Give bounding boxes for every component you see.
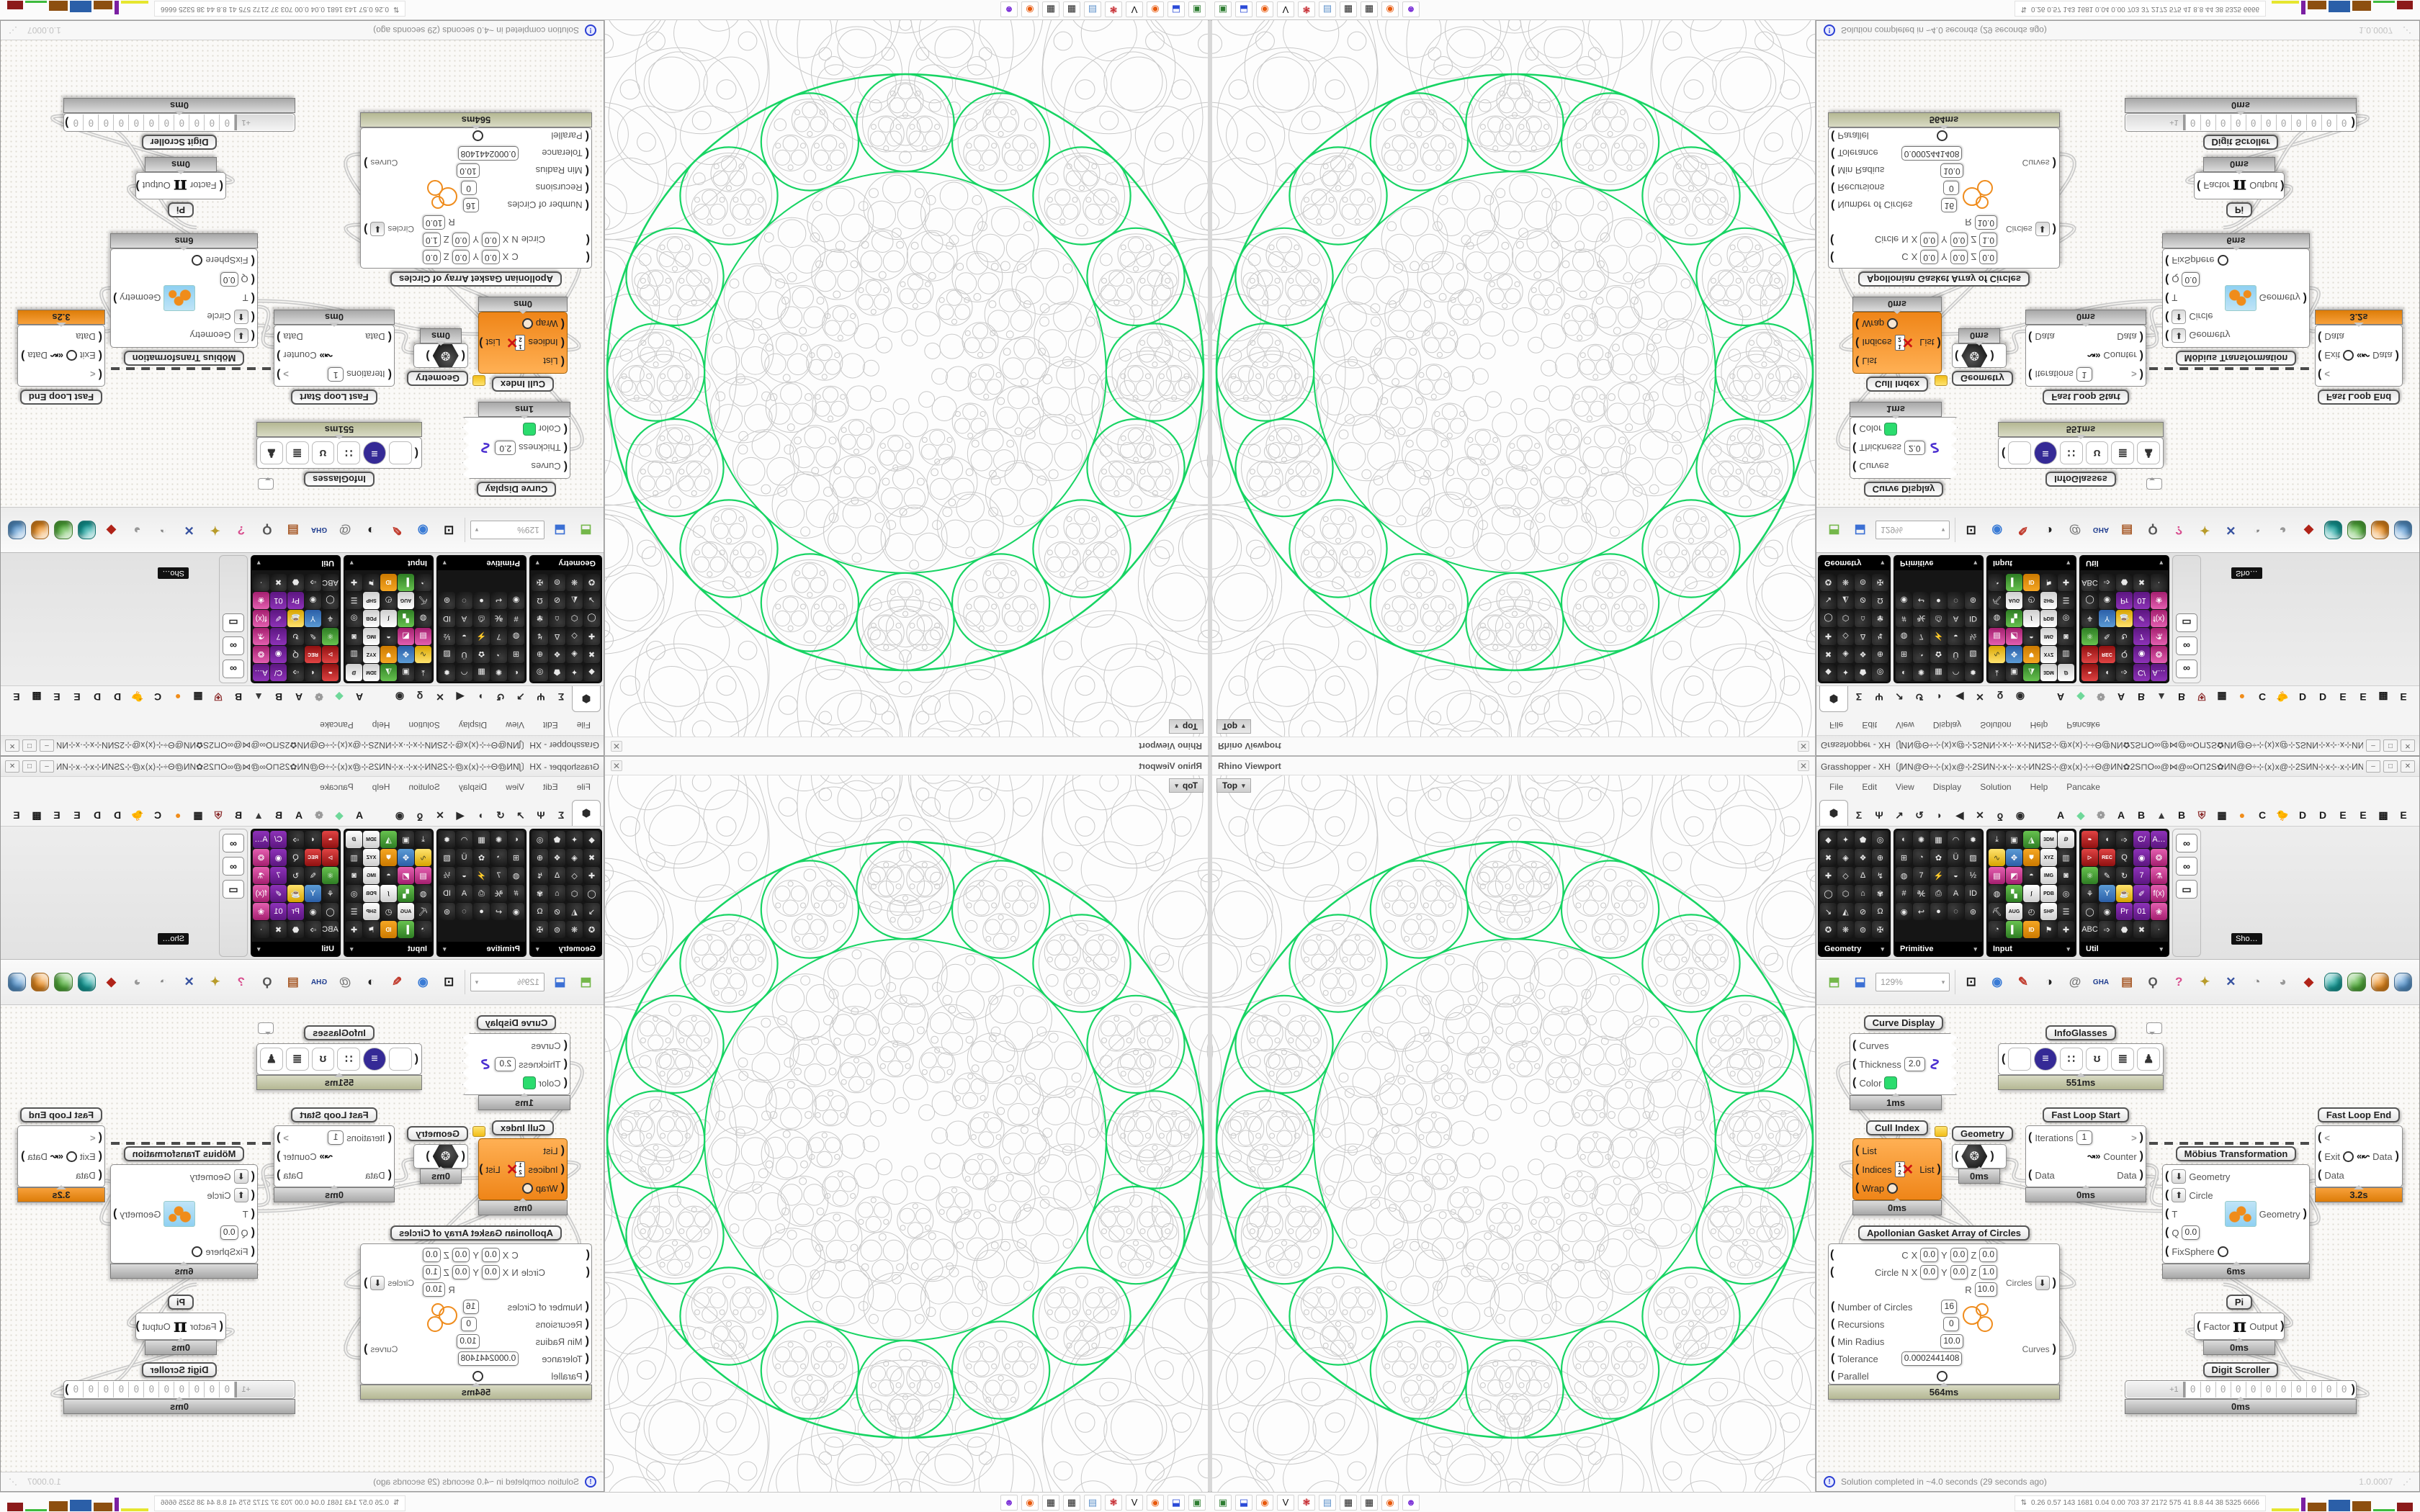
palette-icon[interactable]: Q (2116, 646, 2133, 663)
palette-icon[interactable]: ⊕ (1872, 849, 1888, 866)
palette-icon[interactable]: ∿ (1989, 646, 2005, 663)
chevron-down-icon[interactable]: ▾ (1973, 945, 1977, 953)
plugin-tab-2[interactable]: ❁ (310, 804, 328, 826)
input-grip[interactable]: ( (388, 369, 392, 380)
cx-value[interactable]: 0.0 (482, 250, 500, 264)
palette-icon[interactable]: ◎ (1872, 831, 1888, 848)
palette-icon[interactable]: IMG (363, 867, 380, 884)
view-tab-top[interactable]: Top ▾ (1216, 719, 1251, 734)
finder-button[interactable]: Ϙ (2143, 971, 2164, 993)
category-tab-2[interactable]: Ψ (532, 804, 550, 826)
palette-icon[interactable]: ✹ (439, 664, 455, 681)
palette-icon[interactable]: ◉ (305, 903, 321, 920)
palette-icon[interactable]: ⚘ (2081, 610, 2098, 627)
mobius-transformation-component[interactable]: Möbius Transformation (⬇Geometry (⬆Circl… (110, 233, 258, 366)
profiler-icon[interactable]: ≡ (2034, 1048, 2057, 1071)
palette-icon[interactable]: ❀ (2151, 903, 2167, 920)
comment-bubble-icon[interactable] (2146, 478, 2162, 490)
palette-icon[interactable]: ✥ (398, 849, 414, 866)
input-grip[interactable]: ( (1855, 337, 1859, 348)
category-tab-3[interactable]: ↗ (1890, 686, 1909, 708)
category-tab-6[interactable]: ◀ (451, 686, 470, 708)
app-dark-v[interactable]: V (1126, 2, 1143, 18)
palette-icon[interactable]: ✎ (305, 867, 321, 884)
zoom-extents-button[interactable]: ⊡ (1960, 519, 1981, 541)
output-grip[interactable]: ) (479, 337, 483, 348)
open-file-button[interactable]: ⬒ (1824, 519, 1845, 541)
archive-icon[interactable]: ≣ (286, 1048, 309, 1071)
palette-icon[interactable]: ↻ (2116, 867, 2133, 884)
palette-icon[interactable]: ⊜ (549, 574, 565, 591)
infoglasses-palette-icon-0[interactable]: ∞ (223, 660, 244, 678)
palette-icon[interactable]: ◉ (1896, 903, 1912, 920)
palette-icon[interactable]: ◉ (270, 646, 287, 663)
group-orange-button[interactable] (31, 521, 49, 539)
plugin-tab-17[interactable]: E (7, 686, 26, 708)
app-firefox-2[interactable]: ◉ (1381, 1495, 1399, 1511)
palette-icon[interactable]: ⬟ (549, 664, 565, 681)
digit-cell[interactable]: 0 (144, 1382, 159, 1398)
group-orange-button[interactable] (31, 973, 49, 991)
hints-button[interactable]: ✦ (205, 519, 225, 541)
palette-icon[interactable]: ✺ (490, 664, 507, 681)
palette-icon[interactable]: ⬡ (1837, 885, 1854, 902)
input-grip[interactable]: ( (415, 447, 418, 459)
menu-view[interactable]: View (1896, 782, 1914, 792)
category-tab-1[interactable]: Σ (552, 804, 570, 826)
palette-icon[interactable]: Ü (1948, 849, 1964, 866)
plugin-tab-9[interactable]: ● (169, 686, 187, 708)
palette-icon[interactable]: ↘ (583, 592, 600, 609)
geometry-param-component[interactable]: Geometry (❂) 0ms (413, 1126, 468, 1184)
palette-icon[interactable]: ⬟ (1855, 664, 1871, 681)
palette-icon[interactable]: ⚡ (1930, 867, 1947, 884)
resize-grip[interactable]: ⋰ (2403, 25, 2412, 35)
component-label[interactable]: Fast Loop End (20, 390, 102, 405)
pi-component[interactable]: Pi (FactorπOutput) 0ms (2194, 1295, 2285, 1355)
palette-icon[interactable]: ⊞ (508, 646, 524, 663)
iterations-value[interactable]: 1 (2076, 1130, 2092, 1145)
notes-button[interactable]: ▤ (282, 519, 303, 541)
palette-icon[interactable]: REC (2099, 849, 2115, 866)
input-grip[interactable]: ( (1852, 1058, 1856, 1070)
sphere-button[interactable] (8, 521, 26, 539)
palette-icon[interactable]: PDB (363, 885, 380, 902)
app-red-badge[interactable]: ❃ (1105, 2, 1122, 18)
component-label[interactable]: Geometry (1952, 1126, 2013, 1141)
menu-edit[interactable]: Edit (543, 720, 558, 730)
output-grip[interactable]: ) (2352, 1384, 2355, 1395)
palette-icon[interactable]: ⚗ (253, 628, 269, 645)
zoom-select[interactable]: 129%▾ (470, 973, 544, 991)
input-grip[interactable]: ( (251, 274, 255, 285)
input-grip[interactable]: ( (2028, 1132, 2032, 1143)
group-green-button[interactable] (54, 521, 72, 539)
category-tab-7[interactable]: ✕ (431, 804, 449, 826)
palette-icon[interactable]: ◴ (380, 592, 397, 609)
palette-icon[interactable]: ❀ (253, 903, 269, 920)
infoglasses-palette-icon-0[interactable]: ∞ (2176, 834, 2197, 852)
menu-view[interactable]: View (506, 720, 524, 730)
digit-cell[interactable]: 0 (2336, 1382, 2352, 1398)
input-grip[interactable]: ( (1855, 1164, 1859, 1175)
palette-icon[interactable]: ❂ (253, 849, 269, 866)
category-tab-3[interactable]: ↗ (1890, 804, 1909, 826)
palette-icon[interactable]: Pr (287, 903, 304, 920)
plugin-tab-15[interactable]: E (2354, 686, 2372, 708)
palette-icon[interactable]: ✾ (1872, 610, 1888, 627)
palette-icon[interactable]: Ω (532, 903, 548, 920)
group-teal-button[interactable] (78, 521, 96, 539)
plugin-tab-7[interactable]: ⛨ (2192, 686, 2211, 708)
fast-loop-start-component[interactable]: Fast Loop Start (Iterations1>) ↝»Counter… (2025, 1107, 2146, 1202)
plugin-tab-8[interactable]: ▦ (2213, 686, 2231, 708)
input-grip[interactable]: ( (251, 292, 255, 304)
viewport-canvas[interactable]: Top ▾ (1212, 19, 1815, 737)
palette-icon[interactable]: ✠ (532, 921, 548, 938)
palette-icon[interactable]: ◖ (2099, 664, 2115, 681)
digit-cell[interactable]: 0 (2215, 114, 2231, 130)
comment-bubble-icon[interactable] (258, 478, 274, 490)
output-grip[interactable]: ) (479, 1164, 483, 1175)
palette-icon[interactable]: Q (287, 646, 304, 663)
palette-icon[interactable]: IMG (2040, 867, 2057, 884)
palette-icon[interactable]: ID (380, 574, 397, 591)
mobius-transformation-component[interactable]: Möbius Transformation (⬇Geometry (⬆Circl… (2162, 1146, 2310, 1279)
palette-icon[interactable]: XYZ (363, 849, 380, 866)
chevron-down-icon[interactable]: ▾ (257, 559, 261, 567)
chevron-down-icon[interactable]: ▾ (350, 559, 354, 567)
remote-button[interactable]: @ (2064, 971, 2085, 993)
palette-icon[interactable]: ◓ (380, 628, 397, 645)
menu-view[interactable]: View (506, 782, 524, 792)
palette-icon[interactable]: ✎ (305, 628, 321, 645)
palette-icon[interactable]: ◠ (456, 664, 472, 681)
digit-cell[interactable]: 0 (159, 1382, 174, 1398)
preview-button[interactable]: ◉ (1986, 971, 2007, 993)
app-maze-2[interactable]: ▦ (1361, 1495, 1378, 1511)
palette-icon[interactable]: ▥ (346, 849, 362, 866)
palette-icon[interactable]: ⬟ (549, 831, 565, 848)
thickness-value[interactable]: 2.0 (495, 441, 516, 455)
input-grip[interactable]: ( (561, 1164, 565, 1175)
camera2-button[interactable]: ◕ (2272, 519, 2293, 541)
profiler-icon[interactable]: ≡ (363, 441, 386, 464)
output-grip[interactable]: ) (2396, 1151, 2399, 1162)
input-grip[interactable]: ( (1831, 1336, 1834, 1347)
palette-icon[interactable]: 01 (270, 903, 287, 920)
palette-icon[interactable]: ⚡ (473, 628, 490, 645)
palette-icon[interactable]: ☕ (287, 610, 304, 627)
digit-cell[interactable]: 0 (2185, 114, 2200, 130)
palette-icon[interactable]: 3DM (363, 664, 380, 681)
palette-icon[interactable]: ◈ (566, 646, 583, 663)
input-grip[interactable]: ( (561, 356, 565, 367)
input-grip[interactable]: ( (99, 331, 102, 343)
palette-icon[interactable]: ID (439, 610, 455, 627)
palette-icon[interactable]: ℀ (1913, 610, 1930, 627)
plugin-tab-3[interactable]: A (2112, 686, 2130, 708)
input-grip[interactable]: ( (99, 350, 102, 361)
palette-icon[interactable]: ❂ (2151, 646, 2167, 663)
palette-icon[interactable]: Y (2099, 610, 2115, 627)
digit-cell[interactable]: 0 (2200, 1382, 2215, 1398)
palette-icon[interactable]: ▨ (1965, 849, 1981, 866)
app-firefox-1[interactable]: ◉ (1147, 2, 1164, 18)
plugin-tab-17[interactable]: E (7, 804, 26, 826)
palette-icon[interactable]: ▤ (1989, 867, 2005, 884)
palette-icon[interactable]: ◌ (1948, 903, 1964, 920)
component-label[interactable]: Digit Scroller (142, 1362, 218, 1377)
input-grip[interactable]: ( (2318, 369, 2321, 380)
palette-icon[interactable]: C/ (2133, 831, 2150, 848)
plugin-tab-17[interactable]: E (2394, 804, 2413, 826)
palette-icon[interactable]: ✖ (583, 646, 600, 663)
category-tab-7[interactable]: ✕ (431, 686, 449, 708)
input-grip[interactable]: ( (251, 1171, 255, 1182)
comment-bubble-icon[interactable] (2146, 1022, 2162, 1034)
palette-icon[interactable]: ◔ (1989, 574, 2005, 591)
view-tab-top[interactable]: Top ▾ (1169, 778, 1204, 793)
infoglasses-palette-icon-2[interactable]: ▭ (223, 880, 244, 899)
output-grip[interactable]: ) (2396, 350, 2399, 361)
digit-cell[interactable]: 0 (84, 114, 99, 130)
palette-icon[interactable]: ✚ (2058, 574, 2074, 591)
digit-cell[interactable]: 0 (2246, 114, 2261, 130)
palette-icon[interactable]: ✚ (583, 867, 600, 884)
close-button[interactable]: ✕ (2401, 760, 2415, 773)
minimize-button[interactable]: – (2366, 760, 2380, 773)
plugin-tab-15[interactable]: E (48, 804, 66, 826)
category-tab-9[interactable]: ◉ (2011, 804, 2030, 826)
viewport-canvas[interactable]: Top ▾ (605, 775, 1208, 1493)
input-grip[interactable]: ( (1855, 356, 1859, 367)
output-grip[interactable]: ) (364, 157, 367, 168)
help-button[interactable]: ? (230, 971, 251, 993)
menu-help[interactable]: Help (2030, 720, 2048, 730)
input-grip[interactable]: ( (2165, 255, 2169, 266)
palette-icon[interactable]: 7 (490, 867, 507, 884)
palette-icon[interactable]: ▷ (2081, 646, 2098, 663)
fast-loop-start-component[interactable]: Fast Loop Start (Iterations1>) ↝»Counter… (2025, 310, 2146, 405)
palette-icon[interactable]: ⊘ (549, 592, 565, 609)
fixsphere-toggle[interactable] (192, 1246, 202, 1257)
infoglasses-palette-icon-1[interactable]: ∞ (2176, 857, 2197, 876)
digit-cell[interactable]: 0 (2261, 1382, 2276, 1398)
palette-icon[interactable]: ▣ (398, 831, 414, 848)
gem-button[interactable]: ◆ (101, 971, 122, 993)
palette-icon[interactable]: ◇ (566, 867, 583, 884)
palette-icon[interactable]: ✦ (566, 664, 583, 681)
cy-value[interactable]: 0.0 (452, 250, 470, 264)
palette-icon[interactable]: f(x) (253, 610, 269, 627)
palette-icon[interactable]: ◠ (1948, 664, 1964, 681)
palette-icon[interactable]: 7 (270, 867, 287, 884)
comment-bubble-icon[interactable] (258, 1022, 274, 1034)
palette-icon[interactable]: ☰ (346, 903, 362, 920)
app-notepad[interactable]: ▤ (1084, 2, 1101, 18)
color-swatch[interactable] (1884, 423, 1897, 436)
remote-button[interactable]: @ (334, 971, 355, 993)
palette-icon[interactable]: ✖ (1820, 646, 1837, 663)
camera1-button[interactable]: ◔ (2246, 519, 2267, 541)
nx-value[interactable]: 0.0 (1920, 233, 1938, 247)
palette-icon[interactable]: ❧ (2081, 831, 2098, 848)
app-purple-avatar[interactable]: ☻ (1000, 2, 1018, 18)
ny-value[interactable]: 0.0 (1950, 233, 1968, 247)
exit-toggle[interactable] (2343, 351, 2354, 361)
app-green-chip[interactable]: ▣ (1188, 1495, 1206, 1511)
palette-icon[interactable]: ⊚ (439, 592, 455, 609)
palette-icon[interactable]: ID (380, 921, 397, 938)
close-button[interactable]: ✕ (2401, 739, 2415, 752)
palette-icon[interactable]: ⬣ (287, 921, 304, 938)
component-label[interactable]: Apollonian Gasket Array of Circles (390, 271, 562, 287)
input-grip[interactable]: ( (2002, 1053, 2005, 1065)
palette-icon[interactable]: A… (253, 664, 269, 681)
input-grip[interactable]: ( (586, 1249, 590, 1261)
palette-icon[interactable]: ◈ (566, 849, 583, 866)
palette-icon[interactable]: ▨ (1965, 646, 1981, 663)
chevron-down-icon[interactable]: ▾ (443, 559, 447, 567)
menu-edit[interactable]: Edit (1862, 720, 1877, 730)
menu-file[interactable]: File (1829, 720, 1843, 730)
digit-cell[interactable]: 0 (144, 114, 159, 130)
puzzle-icon[interactable]: ♟ (260, 441, 283, 464)
category-tab-9[interactable]: ◉ (390, 804, 409, 826)
zoom-extents-button[interactable]: ⊡ (439, 519, 460, 541)
palette-icon[interactable]: ✿ (1930, 849, 1947, 866)
palette-icon[interactable]: XYZ (2040, 646, 2057, 663)
palette-icon[interactable]: ➩ (2099, 921, 2115, 938)
plugin-tab-0[interactable]: A (2051, 686, 2070, 708)
palette-icon[interactable]: ℀ (1913, 885, 1930, 902)
palette-icon[interactable]: ◎ (532, 664, 548, 681)
digit-cell[interactable]: 0 (2321, 1382, 2336, 1398)
palette-icon[interactable]: Y (305, 610, 321, 627)
component-label[interactable]: Cull Index (1866, 1120, 1928, 1135)
digit-cell[interactable]: 0 (2185, 1382, 2200, 1398)
palette-icon[interactable]: ◯ (322, 903, 339, 920)
save-file-button[interactable]: ⬓ (550, 519, 570, 541)
palette-icon[interactable]: ◒ (1948, 867, 1964, 884)
palette-icon[interactable]: ● (473, 903, 490, 920)
flatten-icon[interactable]: ⬇ (370, 222, 385, 236)
component-label[interactable]: Fast Loop Start (291, 1107, 377, 1122)
palette-icon[interactable]: ⬡ (566, 610, 583, 627)
mobius-transformation-component[interactable]: Möbius Transformation (⬇Geometry (⬆Circl… (110, 1146, 258, 1279)
digit-cell[interactable]: 0 (159, 114, 174, 130)
resize-grip[interactable]: ⋰ (8, 25, 17, 35)
palette-icon[interactable]: ✥ (2006, 646, 2022, 663)
component-label[interactable]: Pi (2226, 1295, 2252, 1310)
digit-cell[interactable]: 0 (2306, 1382, 2321, 1398)
digit-cell[interactable]: 0 (2306, 114, 2321, 130)
save-file-button[interactable]: ⬓ (1850, 519, 1870, 541)
category-tab-0[interactable]: ⬢ (1819, 800, 1848, 826)
palette-icon[interactable]: ⎙ (1930, 610, 1947, 627)
flatten-icon[interactable]: ⬇ (2172, 328, 2186, 343)
input-grip[interactable]: ( (1955, 1151, 1958, 1162)
component-label[interactable]: Fast Loop Start (291, 390, 377, 405)
category-tab-4[interactable]: ↺ (491, 804, 510, 826)
input-grip[interactable]: ( (99, 1132, 102, 1143)
palette-icon[interactable]: ❋ (1837, 574, 1854, 591)
q-value[interactable]: 0.0 (2182, 1225, 2200, 1240)
palette-icon[interactable]: ⊚ (1965, 903, 1981, 920)
plugin-tab-3[interactable]: A (290, 686, 308, 708)
palette-icon[interactable]: ✾ (532, 610, 548, 627)
palette-icon[interactable]: ✿ (473, 646, 490, 663)
notes-button[interactable]: ▤ (282, 971, 303, 993)
infoglasses-palette-icon-0[interactable]: ∞ (223, 834, 244, 852)
menu-file[interactable]: File (577, 782, 591, 792)
palette-icon[interactable]: ◖ (305, 664, 321, 681)
infoglasses-component[interactable]: InfoGlasses ( ≡ ∷ ʊ ≣ ♟ 551ms (256, 422, 422, 487)
category-tab-2[interactable]: Ψ (532, 686, 550, 708)
app-firefox-1[interactable]: ◉ (1147, 1495, 1164, 1511)
min-radius-value[interactable]: 10.0 (457, 163, 479, 178)
palette-icon[interactable]: 7 (270, 628, 287, 645)
palette-icon[interactable]: ◓ (2023, 867, 2040, 884)
input-grip[interactable]: ( (586, 1370, 589, 1382)
input-grip[interactable]: ( (561, 337, 565, 348)
palette-icon[interactable]: SHP (363, 903, 380, 920)
input-grip[interactable]: ( (462, 350, 465, 361)
input-grip[interactable]: ( (1852, 461, 1856, 472)
palette-icon[interactable]: ⊘ (549, 903, 565, 920)
output-grip[interactable]: ) (277, 1169, 280, 1181)
fast-loop-end-component[interactable]: Fast Loop End (< (Exit«↜Data) (Data 3.2s (2315, 310, 2403, 405)
palette-icon[interactable]: ABC (322, 921, 339, 938)
category-tab-1[interactable]: Σ (1850, 686, 1868, 708)
palette-icon[interactable]: ↘ (583, 903, 600, 920)
grasshopper-titlebar[interactable]: Grasshopper - XH〔ʃИN@Θ÷⊹⟨x⟩x@⊹2SИN⊹x⊹·x⊹… (1816, 757, 2419, 777)
output-grip[interactable]: ) (1990, 1151, 1994, 1162)
sticky-note-icon[interactable] (1935, 375, 1948, 386)
palette-icon[interactable]: · (2151, 574, 2167, 591)
palette-icon[interactable]: ✿ (1930, 646, 1947, 663)
grasshopper-titlebar[interactable]: Grasshopper - XH〔ʃИN@Θ÷⊹⟨x⟩x@⊹2SИN⊹x⊹·x⊹… (1816, 735, 2419, 755)
palette-icon[interactable]: AUG (2006, 592, 2022, 609)
palette-icon[interactable]: # (1896, 885, 1912, 902)
palette-icon[interactable]: ◒ (1948, 628, 1964, 645)
tolerance-value[interactable]: 0.0002441408 (1901, 1351, 1963, 1366)
pi-component[interactable]: Pi (FactorπOutput) 0ms (135, 157, 226, 217)
output-grip[interactable]: ) (277, 331, 280, 343)
palette-icon[interactable]: ∿ (415, 646, 431, 663)
hints-button[interactable]: ✦ (2195, 971, 2215, 993)
notes-button[interactable]: ▤ (2117, 519, 2138, 541)
flatten-icon[interactable]: ⬇ (2035, 1276, 2050, 1290)
palette-icon[interactable]: ◔ (490, 646, 507, 663)
nx-value[interactable]: 0.0 (482, 233, 500, 247)
r-value[interactable]: 10.0 (1975, 1282, 1997, 1297)
category-tab-9[interactable]: ◉ (390, 686, 409, 708)
palette-icon[interactable]: C/ (270, 831, 287, 848)
tolerance-value[interactable]: 0.0002441408 (458, 1351, 519, 1366)
app-floppy64[interactable]: ⬓ (1235, 2, 1252, 18)
digit-cell[interactable]: 0 (68, 114, 84, 130)
viewport-close-icon[interactable]: ✕ (1798, 741, 1809, 752)
plugin-tab-0[interactable]: A (2051, 804, 2070, 826)
palette-icon[interactable]: 7 (490, 628, 507, 645)
palette-icon[interactable]: REC (305, 849, 321, 866)
component-label[interactable]: Möbius Transformation (124, 351, 245, 366)
maximize-button[interactable]: □ (22, 739, 37, 752)
palette-icon[interactable]: ✐ (2133, 610, 2150, 627)
app-maze-2[interactable]: ▦ (1042, 2, 1059, 18)
